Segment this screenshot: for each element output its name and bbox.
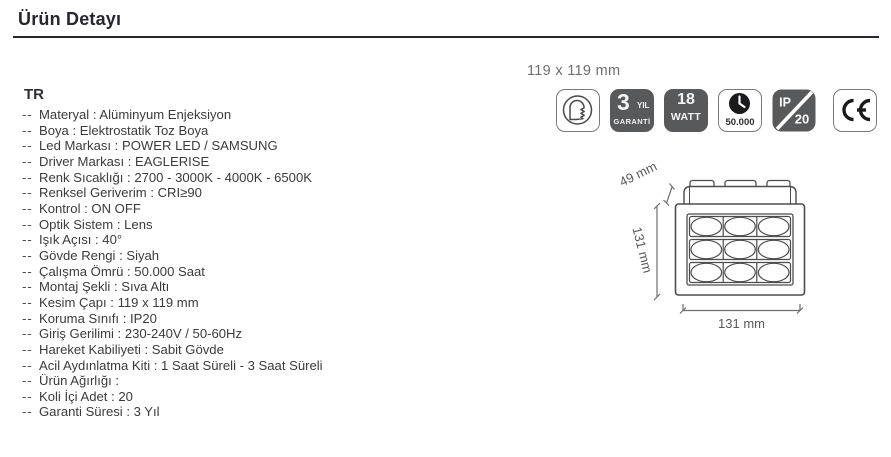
spec-text: Işık Açısı : 40° (39, 232, 122, 248)
spec-item: --Renksel Geriverim : CRI≥90 (22, 185, 492, 201)
spec-item: --Led Markası : POWER LED / SAMSUNG (22, 138, 492, 154)
spec-text: Materyal : Alüminyum Enjeksiyon (39, 107, 231, 123)
svg-text:IP: IP (779, 96, 791, 110)
spec-item: --Boya : Elektrostatik Toz Boya (22, 123, 492, 139)
spec-text: Giriş Gerilimi : 230-240V / 50-60Hz (39, 326, 242, 342)
spec-item: --Garanti Süresi : 3 Yıl (22, 404, 492, 420)
dash-bullet: -- (22, 138, 39, 154)
lifetime-hours: 50.000 (719, 117, 761, 128)
spec-text: Kontrol : ON OFF (39, 201, 141, 217)
clock-icon (719, 90, 760, 116)
language-label: TR (24, 86, 44, 103)
spec-text: Led Markası : POWER LED / SAMSUNG (39, 138, 278, 154)
spec-text: Gövde Rengi : Siyah (39, 248, 159, 264)
spec-item: --Ürün Ağırlığı : (22, 373, 492, 389)
spec-text: Boya : Elektrostatik Toz Boya (39, 123, 208, 139)
height-dimension (654, 203, 660, 300)
spec-text: Driver Markası : EAGLERISE (39, 154, 209, 170)
spec-item: --Materyal : Alüminyum Enjeksiyon (22, 107, 492, 123)
dash-bullet: -- (22, 373, 39, 389)
dash-bullet: -- (22, 404, 39, 420)
dash-bullet: -- (22, 232, 39, 248)
housing-body (684, 187, 796, 205)
ce-mark-icon (834, 90, 875, 130)
spec-list: --Materyal : Alüminyum Enjeksiyon--Boya … (22, 107, 492, 420)
depth-dimension (664, 184, 675, 206)
title-divider (13, 36, 879, 38)
certification-badge-row: 3 YIL GARANTİ 18 WATT 50.000 IP 20 (556, 89, 877, 132)
watt-unit: WATT (664, 111, 708, 123)
recessed-mount-badge (556, 89, 600, 132)
svg-text:20: 20 (795, 112, 809, 127)
ip-rating-badge: IP 20 (772, 89, 816, 132)
width-dimension (680, 304, 803, 314)
dash-bullet: -- (22, 248, 39, 264)
depth-dimension-label: 49 mm (617, 160, 659, 189)
spec-item: --Koli İçi Adet : 20 (22, 389, 492, 405)
spec-text: Montaj Şekli : Sıva Altı (39, 279, 169, 295)
dash-bullet: -- (22, 217, 39, 233)
watt-number: 18 (664, 91, 708, 109)
spec-text: Renk Sıcaklığı : 2700 - 3000K - 4000K - … (39, 170, 312, 186)
spec-item: --Driver Markası : EAGLERISE (22, 154, 492, 170)
spec-text: Garanti Süresi : 3 Yıl (39, 404, 160, 420)
spec-text: Optik Sistem : Lens (39, 217, 153, 233)
spec-item: --Hareket Kabiliyeti : Sabit Gövde (22, 342, 492, 358)
dash-bullet: -- (22, 342, 39, 358)
ce-badge (833, 89, 877, 132)
dash-bullet: -- (22, 264, 39, 280)
spec-item: --Montaj Şekli : Sıva Altı (22, 279, 492, 295)
spec-item: --Koruma Sınıfı : IP20 (22, 311, 492, 327)
lifetime-badge: 50.000 (718, 89, 762, 132)
height-dimension-label: 131 mm (629, 225, 655, 274)
spec-text: Hareket Kabiliyeti : Sabit Gövde (39, 342, 224, 358)
dash-bullet: -- (22, 170, 39, 186)
spec-item: --Optik Sistem : Lens (22, 217, 492, 233)
width-dimension-label: 131 mm (718, 316, 765, 331)
warranty-badge: 3 YIL GARANTİ (610, 89, 654, 132)
dash-bullet: -- (22, 185, 39, 201)
spec-text: Koruma Sınıfı : IP20 (39, 311, 157, 327)
wattage-badge: 18 WATT (664, 89, 708, 132)
spec-item: --Işık Açısı : 40° (22, 232, 492, 248)
dash-bullet: -- (22, 107, 39, 123)
dash-bullet: -- (22, 389, 39, 405)
dash-bullet: -- (22, 358, 39, 374)
recessed-mount-icon (557, 90, 598, 130)
spec-item: --Kontrol : ON OFF (22, 201, 492, 217)
dash-bullet: -- (22, 279, 39, 295)
spec-text: Koli İçi Adet : 20 (39, 389, 133, 405)
spec-text: Çalışma Ömrü : 50.000 Saat (39, 264, 205, 280)
dash-bullet: -- (22, 123, 39, 139)
spec-item: --Renk Sıcaklığı : 2700 - 3000K - 4000K … (22, 170, 492, 186)
spec-text: Renksel Geriverim : CRI≥90 (39, 185, 202, 201)
spec-item: --Kesim Çapı : 119 x 119 mm (22, 295, 492, 311)
spec-text: Kesim Çapı : 119 x 119 mm (39, 295, 199, 311)
dash-bullet: -- (22, 154, 39, 170)
warranty-unit: YIL (637, 101, 649, 110)
dash-bullet: -- (22, 311, 39, 327)
spec-text: Ürün Ağırlığı : (39, 373, 119, 389)
dash-bullet: -- (22, 326, 39, 342)
spec-text: Acil Aydınlatma Kiti : 1 Saat Süreli - 3… (39, 358, 323, 374)
spec-item: --Giriş Gerilimi : 230-240V / 50-60Hz (22, 326, 492, 342)
technical-drawing: 131 mm 131 mm 49 mm (600, 160, 891, 362)
spec-item: --Çalışma Ömrü : 50.000 Saat (22, 264, 492, 280)
spec-item: --Acil Aydınlatma Kiti : 1 Saat Süreli -… (22, 358, 492, 374)
warranty-word: GARANTİ (610, 117, 654, 126)
page-title: Ürün Detayı (18, 9, 121, 30)
ip20-icon: IP 20 (772, 89, 816, 132)
warranty-years: 3 (617, 89, 630, 116)
dash-bullet: -- (22, 295, 39, 311)
product-detail-page: Ürün Detayı TR --Materyal : Alüminyum En… (0, 0, 891, 457)
dash-bullet: -- (22, 201, 39, 217)
cutout-size-label: 119 x 119 mm (527, 63, 620, 79)
spec-item: --Gövde Rengi : Siyah (22, 248, 492, 264)
